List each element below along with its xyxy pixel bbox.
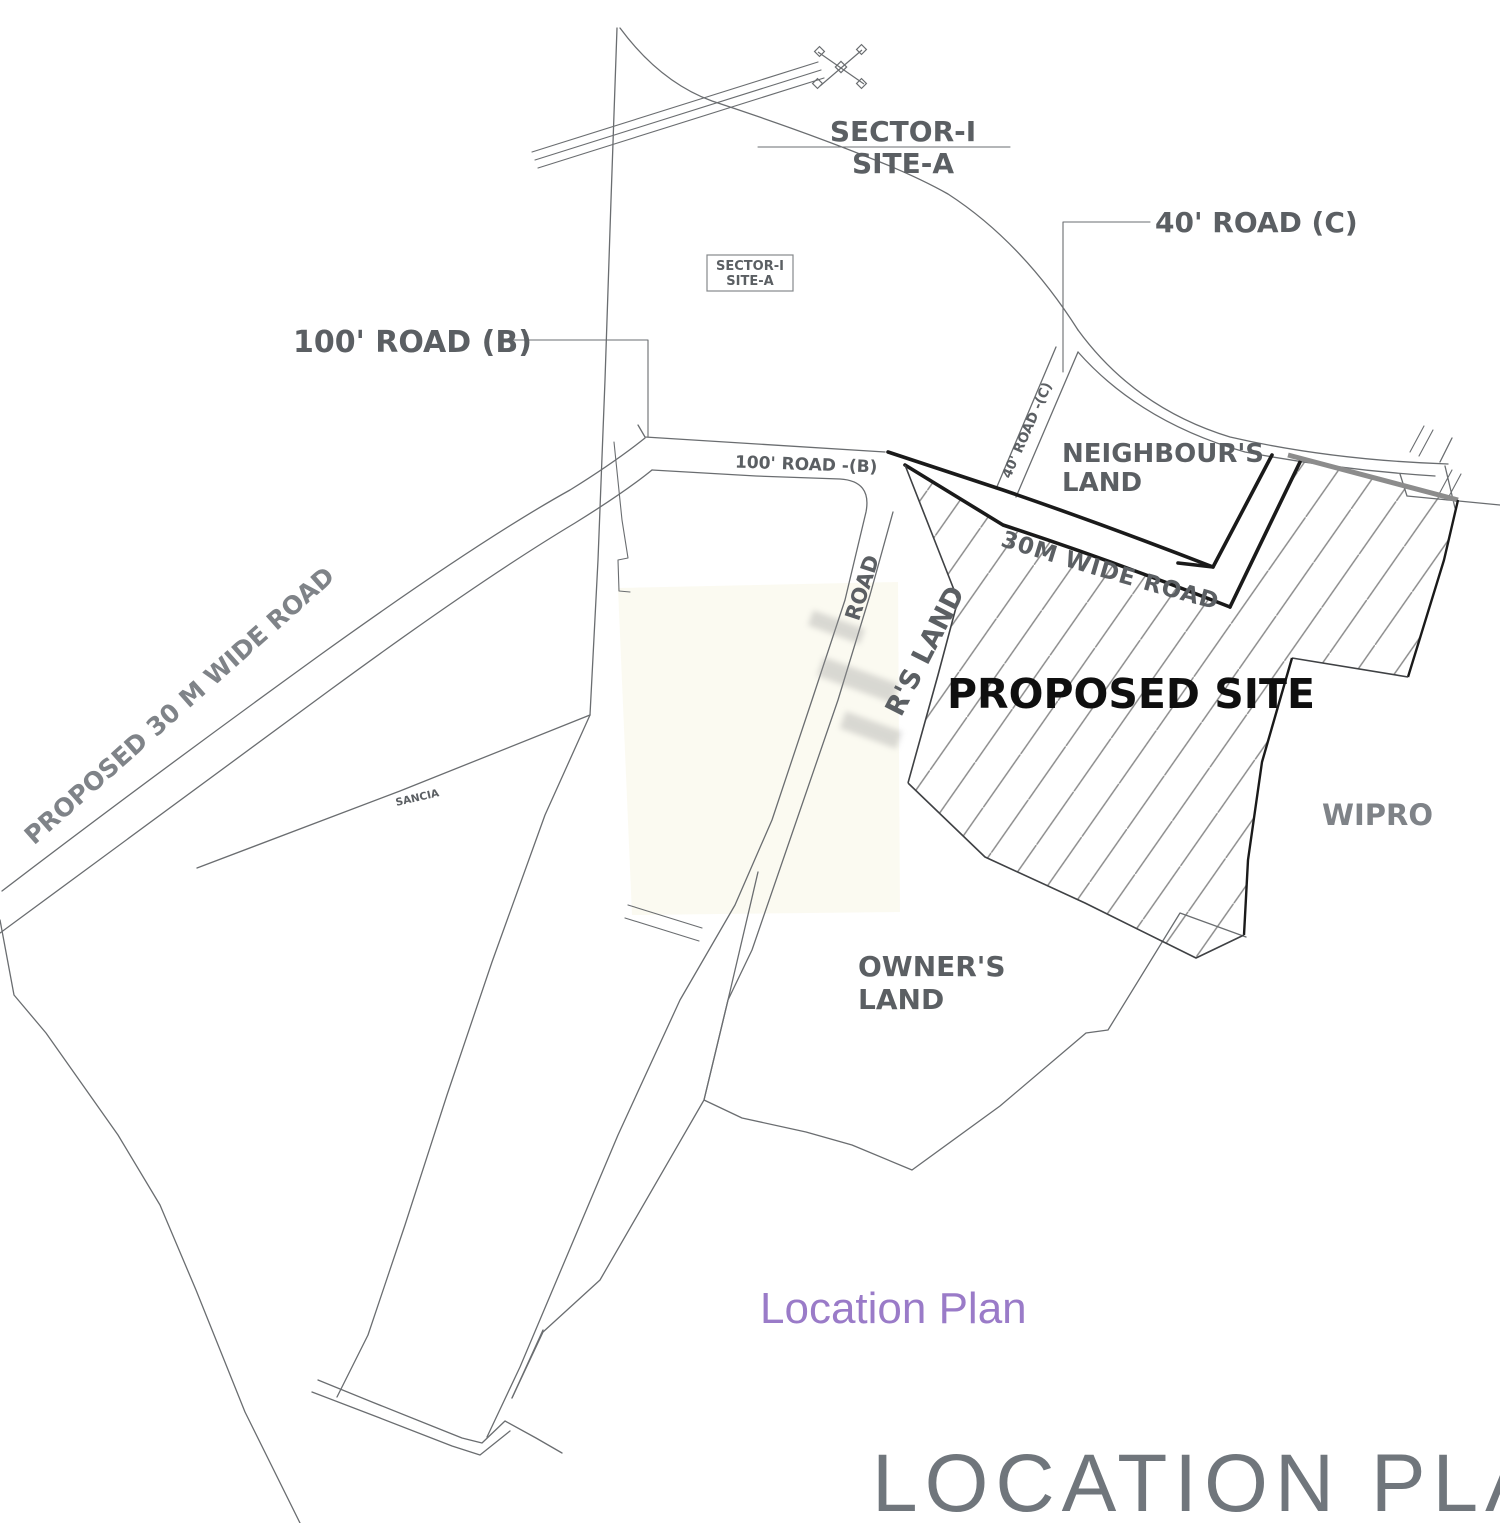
sector-site-box-line1: SECTOR-I xyxy=(716,259,784,274)
location-plan-page: SECTOR-I SITE-A SECTOR-I SITE-A 40' ROAD… xyxy=(0,0,1500,1523)
left-vertical-boundary xyxy=(590,28,617,715)
proposed-site-label: PROPOSED SITE xyxy=(947,670,1315,718)
location-plan-caption: Location Plan xyxy=(760,1284,1027,1333)
transmission-tower-icon xyxy=(813,45,867,89)
owners-land-label-line1: OWNER'S xyxy=(858,950,1006,983)
callout-leaders xyxy=(505,147,1150,437)
outer-lower-boundary xyxy=(0,920,300,1523)
road-40-callout-label: 40' ROAD (C) xyxy=(1155,206,1358,239)
road40-callout-leader xyxy=(1063,222,1150,372)
sancia-line xyxy=(197,715,590,868)
inner-long-boundary xyxy=(337,715,590,1397)
sector-site-title-line2: SITE-A xyxy=(852,147,954,180)
road-100b-north-edge xyxy=(638,425,885,452)
sector-site-title-line1: SECTOR-I xyxy=(830,115,976,148)
sector-site-box-line2: SITE-A xyxy=(726,274,773,289)
wipro-label: WIPRO xyxy=(1322,798,1433,832)
proposed-30m-road-label: PROPOSED 30 M WIDE ROAD xyxy=(19,561,340,850)
road-100-inline-label: 100' ROAD -(B) xyxy=(735,453,878,478)
road-100-callout-label: 100' ROAD (B) xyxy=(293,325,532,360)
proposed-30m-road-south-edge xyxy=(0,470,652,933)
neighbours-land-label-line1: NEIGHBOUR'S xyxy=(1062,439,1264,469)
owners-land-label-line2: LAND xyxy=(858,983,944,1016)
location-plan-drawing: SECTOR-I SITE-A SECTOR-I SITE-A 40' ROAD… xyxy=(0,0,1500,1523)
location-plan-title: LOCATION PLAN xyxy=(872,1438,1500,1523)
proposed-30m-road-north-edge xyxy=(2,438,645,891)
bottom-small-road xyxy=(312,1330,562,1455)
transmission-line xyxy=(532,45,866,168)
transmission-wires xyxy=(532,62,824,168)
parcel-left-edge xyxy=(614,442,630,592)
road-40-inline-label: 40' ROAD -(C) xyxy=(999,380,1056,481)
neighbours-land-label-line2: LAND xyxy=(1062,468,1142,498)
